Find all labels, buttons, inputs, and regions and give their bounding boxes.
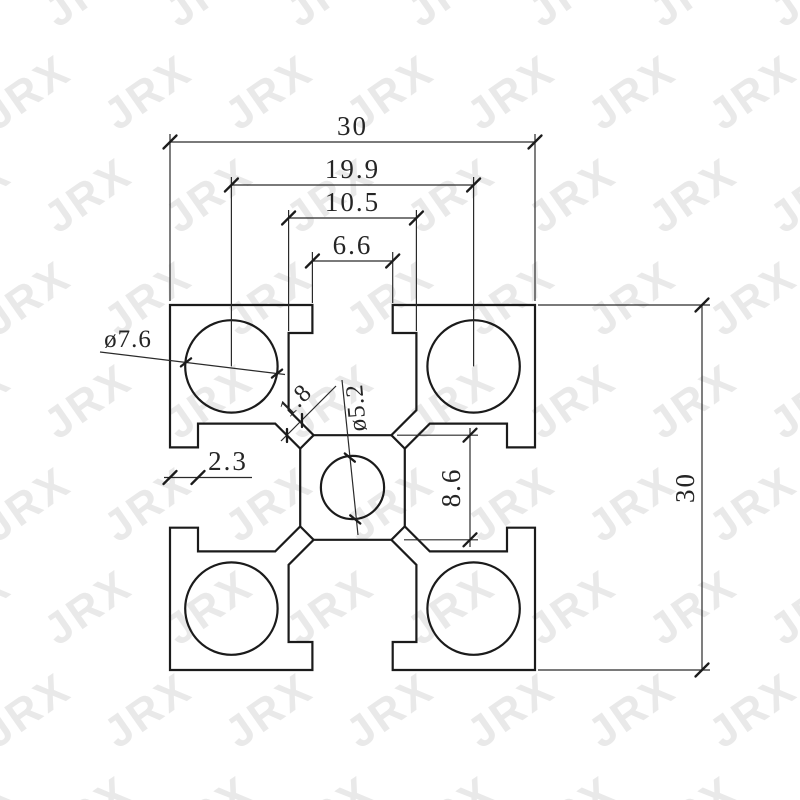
dim-slot-opening: 6.6 xyxy=(306,230,399,303)
dim-label-center-hole-dia: ø5.2 xyxy=(341,383,372,433)
dim-lip-depth: 2.3 xyxy=(164,446,253,484)
dim-label-core-size: 8.6 xyxy=(436,468,466,508)
dim-hole-pitch: 19.9 xyxy=(225,154,480,366)
core-chamfer-line xyxy=(300,435,313,448)
dim-label-lip-depth: 2.3 xyxy=(208,446,248,476)
dim-label-overall-width: 30 xyxy=(337,111,368,141)
dim-label-slot-opening: 6.6 xyxy=(333,230,373,260)
profile-drawing-svg: 30 19.9 10.5 6.6 xyxy=(0,0,800,800)
core-chamfer-line xyxy=(300,526,313,539)
dim-label-overall-height: 30 xyxy=(670,472,700,503)
dim-label-corner-hole-dia: ø7.6 xyxy=(104,326,152,353)
dim-core-size: 8.6 xyxy=(397,428,478,547)
corner-hole-circle xyxy=(427,562,519,654)
drawing-canvas: JRXJRXJRXJRXJRXJRXJRXJRXJRXJRXJRXJRXJRXJ… xyxy=(0,0,800,800)
dim-corner-hole-dia: ø7.6 xyxy=(100,326,285,378)
dim-label-hole-pitch: 19.9 xyxy=(325,154,380,184)
core-chamfer-line xyxy=(391,435,404,448)
dim-label-chamber-width: 10.5 xyxy=(325,187,380,217)
core-chamfer-line xyxy=(391,526,404,539)
corner-hole-circle xyxy=(185,562,277,654)
dim-label-rib-thickness: 1.8 xyxy=(274,379,317,422)
dim-overall-height: 30 xyxy=(538,299,710,677)
